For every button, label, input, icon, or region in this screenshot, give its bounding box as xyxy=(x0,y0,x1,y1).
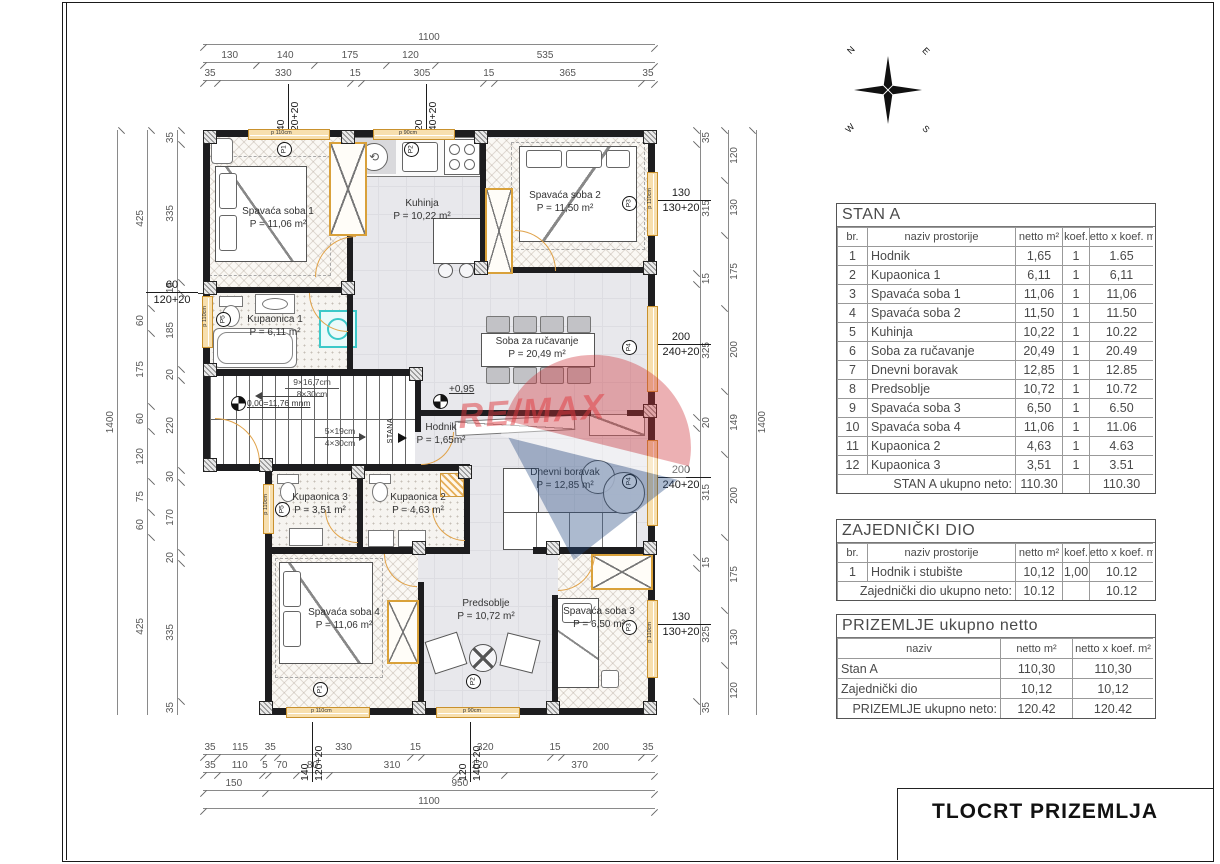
cell-row-number: 5 xyxy=(837,322,867,341)
col-header: netto x koef. m² xyxy=(1089,227,1153,246)
wall-column xyxy=(643,701,657,715)
footer-netto-koef: 120.42 xyxy=(1072,698,1153,718)
stair-risers: 9×16,7cm xyxy=(285,377,339,389)
dim-segment: 335 xyxy=(163,563,178,700)
footer-netto-koef: 110.30 xyxy=(1089,474,1153,493)
elevation-symbol-icon xyxy=(231,396,246,411)
table-stan-a: STAN A br. naziv prostorije netto m² koe… xyxy=(836,203,1156,494)
window-parapet-label: p 110cm xyxy=(648,622,654,643)
cell-room-name: Kupaonica 1 xyxy=(867,265,1015,284)
dim-segment: 120 xyxy=(728,130,743,180)
dim-value: 75 xyxy=(135,491,147,502)
dim-value: 15 xyxy=(350,66,361,81)
entrance-arrow-icon xyxy=(398,433,407,443)
window-mark-label: P5 xyxy=(279,506,286,514)
wardrobe xyxy=(387,600,419,664)
dim-chain-top-axes: 130 140 175 120 535 xyxy=(203,48,655,63)
pillow xyxy=(283,571,301,607)
window-mark-label: P2 xyxy=(408,146,415,154)
cell-room-name: Hodnik i stubište xyxy=(867,562,1015,581)
wall-column xyxy=(458,465,472,479)
cell-koef: 1 xyxy=(1062,436,1089,455)
col-header: netto m² xyxy=(1000,638,1072,658)
cell-koef: 1 xyxy=(1062,398,1089,417)
room-area: P = 6,50 m² xyxy=(563,618,635,631)
room-area: P = 6,11 m² xyxy=(247,326,303,339)
dim-value: 170 xyxy=(165,509,177,526)
compass-n: N xyxy=(845,44,857,56)
wall-column xyxy=(259,458,273,472)
window-parapet-label: p 110cm xyxy=(203,306,209,327)
cell-koef: 1 xyxy=(1062,322,1089,341)
dim-value: 15 xyxy=(483,66,494,81)
col-header: netto m² xyxy=(1015,543,1062,562)
dim-segment: 220 xyxy=(163,380,178,470)
wall-column xyxy=(412,541,426,555)
burner xyxy=(464,159,475,170)
cell-room-name: Spavaća soba 1 xyxy=(867,284,1015,303)
window-width: 120 xyxy=(458,722,469,782)
dim-value: 330 xyxy=(277,740,410,755)
dim-value: 370 xyxy=(504,758,655,773)
dim-value: 335 xyxy=(165,624,177,641)
room-label-bedroom4: Spavaća soba 4 P = 11,06 m² xyxy=(308,606,380,632)
dim-segment: 130 xyxy=(728,180,743,234)
cell-netto-koef: 10,12 xyxy=(1072,678,1153,698)
washbasin xyxy=(368,530,394,547)
window-height: 140+20 xyxy=(472,722,483,782)
cell-netto-koef: 12.85 xyxy=(1089,360,1153,379)
dim-value: 425 xyxy=(135,210,147,227)
dim-value: 30 xyxy=(165,471,177,482)
wall xyxy=(265,547,470,554)
cell-netto: 12,85 xyxy=(1015,360,1062,379)
watermark-balloon-icon xyxy=(480,330,710,570)
window-mark: P3 xyxy=(622,196,637,211)
cell-room-name: Hodnik xyxy=(867,246,1015,265)
cell-row-number: 3 xyxy=(837,284,867,303)
dim-segment: 60 xyxy=(133,512,148,537)
cell-row-number: 2 xyxy=(837,265,867,284)
cell-name: Zajednički dio xyxy=(837,678,1000,698)
table-grid: naziv netto m² netto x koef. m² Stan A 1… xyxy=(837,638,1155,718)
wall-column xyxy=(203,130,217,144)
dim-value: 60 xyxy=(135,413,147,424)
dim-segment: 425 xyxy=(133,537,148,715)
dim-segment: 35 xyxy=(700,701,715,715)
cell-row-number: 4 xyxy=(837,303,867,322)
stove xyxy=(444,139,480,175)
cell-netto: 20,49 xyxy=(1015,341,1062,360)
dim-segment: 75 xyxy=(133,481,148,512)
dim-value: 1400 xyxy=(757,411,769,433)
stair-landing-line xyxy=(210,419,415,420)
cell-netto: 11,06 xyxy=(1015,284,1062,303)
dim-value: 365 xyxy=(494,66,641,81)
dim-value: 1100 xyxy=(203,30,655,45)
wall-column xyxy=(474,130,488,144)
wall xyxy=(203,369,421,376)
window-size-label-bottom1: 140120+20 xyxy=(300,722,325,782)
stair-arrow-icon xyxy=(359,433,366,441)
dim-value: 305 xyxy=(361,66,484,81)
stool xyxy=(459,263,474,278)
room-area: P = 10,72 m² xyxy=(457,610,514,623)
window-width: 130 xyxy=(651,610,711,625)
toilet-bowl xyxy=(372,482,388,502)
compass-rose-icon: N E W S xyxy=(838,36,938,140)
cell-room-name: Kuhinja xyxy=(867,322,1015,341)
window-parapet-label: p 110cm xyxy=(648,188,654,209)
dim-value: 425 xyxy=(135,618,147,635)
cell-row-number: 9 xyxy=(837,398,867,417)
dim-value: 35 xyxy=(641,740,655,755)
cell-koef: 1 xyxy=(1062,341,1089,360)
window-mark-label: P1 xyxy=(317,686,324,694)
room-name: Kupaonica 2 xyxy=(390,491,446,504)
room-area: P = 1,65m² xyxy=(416,434,465,447)
cell-netto-koef: 4.63 xyxy=(1089,436,1153,455)
table-prizemlje: PRIZEMLJE ukupno netto naziv netto m² ne… xyxy=(836,614,1156,719)
burner xyxy=(449,144,460,155)
room-name: Kupaonica 1 xyxy=(247,313,303,326)
dim-value: 1100 xyxy=(203,794,655,809)
col-header: naziv prostorije xyxy=(867,227,1015,246)
wardrobe xyxy=(485,188,513,274)
window-mark: P2 xyxy=(404,142,419,157)
window-width: 60 xyxy=(146,278,198,293)
table-grid: br. naziv prostorije netto m² koef. nett… xyxy=(837,227,1155,493)
cell-netto-koef: 10.12 xyxy=(1089,562,1153,581)
room-name: Spavaća soba 2 xyxy=(529,189,601,202)
room-area: P = 11,50 m² xyxy=(529,202,601,215)
cell-netto-koef: 20.49 xyxy=(1089,341,1153,360)
cell-room-name: Dnevni boravak xyxy=(867,360,1015,379)
dim-segment: 149 xyxy=(728,391,743,453)
cell-room-name: Spavaća soba 2 xyxy=(867,303,1015,322)
window-width: 140 xyxy=(300,722,311,782)
washbasin xyxy=(255,294,295,314)
dim-segment: 15 xyxy=(700,273,715,284)
window-width: 130 xyxy=(651,186,711,201)
title-block-border xyxy=(897,788,1213,789)
dim-value: 185 xyxy=(165,322,177,339)
cell-netto-koef: 10.72 xyxy=(1089,379,1153,398)
window-size-label-right4: 130 130+20 xyxy=(651,610,711,640)
dim-value: 130 xyxy=(729,629,741,646)
dim-value: 200 xyxy=(561,740,641,755)
dim-segment: 35 xyxy=(700,130,715,144)
col-header: koef. xyxy=(1062,543,1089,562)
dim-value: 120 xyxy=(135,448,147,465)
dim-value: 35 xyxy=(701,132,713,143)
cell-row-number: 7 xyxy=(837,360,867,379)
wall-column xyxy=(546,701,560,715)
cell-netto: 3,51 xyxy=(1015,455,1062,474)
dim-segment: 335 xyxy=(163,144,178,281)
cell-room-name: Soba za ručavanje xyxy=(867,341,1015,360)
cell-netto: 1,65 xyxy=(1015,246,1062,265)
cell-netto: 11,06 xyxy=(1015,417,1062,436)
table-grid: br. naziv prostorije netto m² koef. nett… xyxy=(837,543,1155,600)
room-area: P = 3,51 m² xyxy=(292,504,348,517)
table-zajednicki-dio: ZAJEDNIČKI DIO br. naziv prostorije nett… xyxy=(836,519,1156,601)
col-header: netto x koef. m² xyxy=(1072,638,1153,658)
cell-netto-koef: 11.06 xyxy=(1089,417,1153,436)
dim-segment: 1400 xyxy=(103,130,118,715)
footer-netto: 10.12 xyxy=(1015,581,1062,600)
cell-netto: 10,12 xyxy=(1000,678,1072,698)
room-name: Spavaća soba 4 xyxy=(308,606,380,619)
window-mark-label: P2 xyxy=(470,678,477,686)
footer-label: Zajednički dio ukupno neto: xyxy=(837,581,1015,600)
kitchen-island xyxy=(433,218,482,264)
dim-segment: 170 xyxy=(163,482,178,552)
cell-room-name: Kupaonica 2 xyxy=(867,436,1015,455)
dim-value: 200 xyxy=(729,341,741,358)
dim-value: 150 xyxy=(203,776,265,791)
dim-value: 35 xyxy=(203,740,217,755)
dim-chain-right-total: 1400 xyxy=(756,130,771,715)
dim-value: 110 xyxy=(217,758,262,773)
cell-room-name: Kupaonica 3 xyxy=(867,455,1015,474)
cell-koef: 1 xyxy=(1062,284,1089,303)
pillow xyxy=(606,150,630,168)
dim-chain-top-total: 1100 xyxy=(203,30,655,45)
room-area: P = 10,22 m² xyxy=(393,210,450,223)
cell-koef: 1 xyxy=(1062,455,1089,474)
entrance-label: STANA xyxy=(387,418,394,443)
pillow xyxy=(283,611,301,647)
dim-value: 140 xyxy=(256,48,314,63)
cell-netto-koef: 6,11 xyxy=(1089,265,1153,284)
room-name: Kupaonica 3 xyxy=(292,491,348,504)
cell-name: Stan A xyxy=(837,658,1000,678)
dim-chain-top-detail: 35 330 15 305 15 365 35 xyxy=(203,66,655,81)
window-parapet-label: p 110cm xyxy=(264,494,270,515)
dim-value: 175 xyxy=(729,263,741,280)
page-border-inner-line xyxy=(66,2,67,860)
stair-direction-line xyxy=(261,396,323,397)
elevation-label: +0,95 xyxy=(449,384,474,395)
cell-koef: 1 xyxy=(1062,417,1089,436)
dim-value: 130 xyxy=(203,48,256,63)
table-title: PRIZEMLJE ukupno netto xyxy=(837,615,1155,638)
room-name: Predsoblje xyxy=(457,597,514,610)
cell-koef: 1 xyxy=(1062,303,1089,322)
dim-value: 535 xyxy=(435,48,655,63)
cell-row-number: 1 xyxy=(837,562,867,581)
wall xyxy=(203,464,470,471)
table-title: STAN A xyxy=(837,204,1155,227)
wall-column xyxy=(259,701,273,715)
col-header: netto x koef. m² xyxy=(1089,543,1153,562)
cell-netto: 110,30 xyxy=(1000,658,1072,678)
cell-netto-koef: 6.50 xyxy=(1089,398,1153,417)
dim-segment: 20 xyxy=(163,552,178,563)
window-height: 130+20 xyxy=(651,201,711,215)
col-header: koef. xyxy=(1062,227,1089,246)
window-parapet-label: p 110cm xyxy=(311,709,332,715)
wall-column xyxy=(203,363,217,377)
wall-column xyxy=(412,701,426,715)
dim-segment: 35 xyxy=(163,701,178,715)
room-area: P = 11,06 m² xyxy=(308,619,380,632)
burner xyxy=(464,144,475,155)
dim-value: 15 xyxy=(550,740,561,755)
footer-netto: 120.42 xyxy=(1000,698,1072,718)
dim-value: 15 xyxy=(410,740,421,755)
dim-value: 60 xyxy=(135,315,147,326)
window-mark-label: P5 xyxy=(220,316,227,324)
window-size-label-right1: 130 130+20 xyxy=(651,186,711,216)
cell-room-name: Spavaća soba 3 xyxy=(867,398,1015,417)
wall-column xyxy=(203,281,217,295)
dim-segment: 175 xyxy=(728,537,743,610)
cell-netto: 11,50 xyxy=(1015,303,1062,322)
footer-koef xyxy=(1062,474,1089,493)
cell-netto-koef: 3.51 xyxy=(1089,455,1153,474)
window-mark: P5 xyxy=(216,312,231,327)
footer-label: PRIZEMLJE ukupno neto: xyxy=(837,698,1000,718)
round-table xyxy=(469,644,497,672)
nightstand xyxy=(601,670,619,688)
window-parapet-label: p 90cm xyxy=(399,131,417,137)
cell-room-name: Predsoblje xyxy=(867,379,1015,398)
cell-netto-koef: 10.22 xyxy=(1089,322,1153,341)
footer-netto-koef: 10.12 xyxy=(1089,581,1153,600)
basin-bowl xyxy=(262,298,288,310)
dim-value: 120 xyxy=(386,48,435,63)
cell-koef: 1 xyxy=(1062,360,1089,379)
dim-value: 60 xyxy=(135,519,147,530)
cell-koef: 1 xyxy=(1062,265,1089,284)
cell-netto-koef: 11,06 xyxy=(1089,284,1153,303)
pillow xyxy=(219,173,237,209)
cell-koef: 1,00 xyxy=(1062,562,1089,581)
window-mark: P2 xyxy=(466,674,481,689)
table-title: ZAJEDNIČKI DIO xyxy=(837,520,1155,543)
window-height: 120+20 xyxy=(146,293,198,307)
dim-segment: 35 xyxy=(163,130,178,144)
wall-column xyxy=(409,367,423,381)
footer-netto: 110.30 xyxy=(1015,474,1062,493)
cell-netto-koef: 110,30 xyxy=(1072,658,1153,678)
room-name: Kuhinja xyxy=(393,197,450,210)
elevation-zero-label: 0,00=11,76 mnm xyxy=(247,398,310,408)
stool xyxy=(438,263,453,278)
cell-netto: 10,12 xyxy=(1015,562,1062,581)
dim-value: 120 xyxy=(729,682,741,699)
cell-netto: 6,11 xyxy=(1015,265,1062,284)
dim-value: 35 xyxy=(165,132,177,143)
cell-netto-koef: 1.65 xyxy=(1089,246,1153,265)
cell-row-number: 12 xyxy=(837,455,867,474)
dim-chain-bottom-detail: 35 115 35 330 15 320 15 200 35 xyxy=(203,740,655,755)
dim-value: 35 xyxy=(203,66,217,81)
dim-value: 20 xyxy=(165,369,177,380)
col-header: naziv prostorije xyxy=(867,543,1015,562)
room-label-bedroom2: Spavaća soba 2 P = 11,50 m² xyxy=(529,189,601,215)
dim-segment: 120 xyxy=(728,665,743,715)
title-block-border xyxy=(897,788,898,860)
dim-value: 35 xyxy=(701,702,713,713)
dim-value: 130 xyxy=(729,199,741,216)
dim-chain-left-axes: 425 60 175 60 120 75 60 425 xyxy=(133,130,148,715)
wall-column xyxy=(351,465,365,479)
dim-chain-bottom-groups: 150 950 xyxy=(203,776,655,791)
window-mark-label: P3 xyxy=(626,200,633,208)
pillow xyxy=(566,150,602,168)
dim-value: 35 xyxy=(165,702,177,713)
col-header: naziv xyxy=(837,638,1000,658)
compass-e: E xyxy=(920,45,931,56)
window-size-label-bottom2: 120140+20 xyxy=(458,722,483,782)
dim-value: 320 xyxy=(421,740,550,755)
dim-value: 70 xyxy=(268,758,297,773)
dim-value: 310 xyxy=(329,758,455,773)
dim-chain-bottom-rooms: 35 110 5 70 80 310 120 370 xyxy=(203,758,655,773)
dim-value: 220 xyxy=(165,417,177,434)
room-label-bedroom3: Spavaća soba 3 P = 6,50 m² xyxy=(563,605,635,631)
compass-s: S xyxy=(920,123,931,134)
dim-segment: 60 xyxy=(133,406,148,431)
dim-chain-left-total: 1400 xyxy=(103,130,118,715)
window-mark: P5 xyxy=(275,502,290,517)
room-label-kitchen: Kuhinja P = 10,22 m² xyxy=(393,197,450,223)
dim-value: 149 xyxy=(729,414,741,431)
drawing-title: TLOCRT PRIZEMLJA xyxy=(932,800,1158,824)
window-parapet-label: p 90cm xyxy=(463,709,481,715)
footer-label: STAN A ukupno neto: xyxy=(837,474,1015,493)
dim-value: 120 xyxy=(729,147,741,164)
dim-value: 15 xyxy=(701,273,713,284)
elevation-symbol-icon xyxy=(433,394,448,409)
col-header: br. xyxy=(837,227,867,246)
burner xyxy=(449,159,460,170)
window-mark: P1 xyxy=(313,682,328,697)
room-label-bathroom2: Kupaonica 2 P = 4,63 m² xyxy=(390,491,446,517)
window-height: 130+20 xyxy=(651,625,711,639)
cell-netto: 6,50 xyxy=(1015,398,1062,417)
pillow xyxy=(526,150,562,168)
wardrobe xyxy=(329,142,367,236)
dim-value: 35 xyxy=(263,740,277,755)
cell-room-name: Spavaća soba 4 xyxy=(867,417,1015,436)
cell-koef: 1 xyxy=(1062,246,1089,265)
dim-chain-right-axes: 120 130 175 200 149 200 175 130 120 xyxy=(728,130,743,715)
room-area: P = 4,63 m² xyxy=(390,504,446,517)
dim-value: 35 xyxy=(641,66,655,81)
dim-value: 115 xyxy=(217,740,263,755)
footer-koef xyxy=(1062,581,1089,600)
dim-segment: 200 xyxy=(728,308,743,392)
kitchen-counter: ⟲ xyxy=(353,137,482,177)
col-header: br. xyxy=(837,543,867,562)
dim-chain-bottom-total: 1100 xyxy=(203,794,655,809)
cell-koef: 1 xyxy=(1062,379,1089,398)
dim-segment: 130 xyxy=(728,610,743,664)
dim-segment: 175 xyxy=(133,333,148,406)
dim-segment: 175 xyxy=(728,235,743,308)
room-label-bathroom3: Kupaonica 3 P = 3,51 m² xyxy=(292,491,348,517)
dim-value: 1400 xyxy=(105,411,117,433)
wall-column xyxy=(474,261,488,275)
dim-value: 20 xyxy=(165,552,177,563)
cell-netto: 10,22 xyxy=(1015,322,1062,341)
cell-row-number: 6 xyxy=(837,341,867,360)
exterior-notch xyxy=(203,471,265,715)
